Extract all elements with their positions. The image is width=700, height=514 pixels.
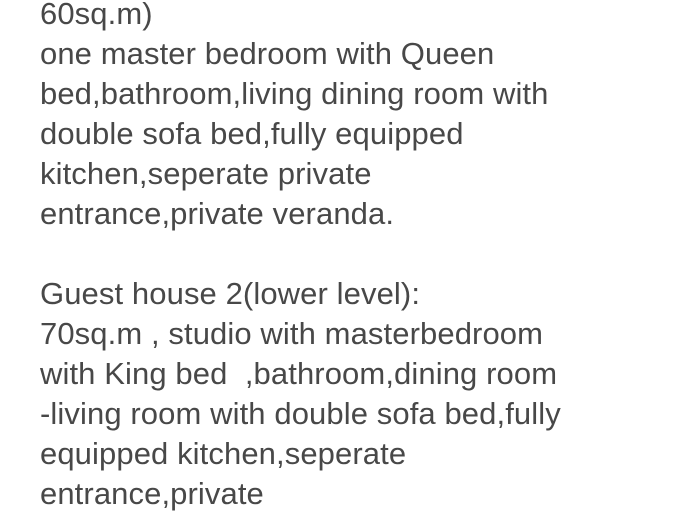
description-line: entrance,private (40, 474, 680, 514)
description-line: one master bedroom with Queen (40, 34, 680, 74)
description-line: -living room with double sofa bed,fully (40, 394, 680, 434)
description-line: equipped kitchen,seperate (40, 434, 680, 474)
listing-description: 60sq.m) one master bedroom with Queen be… (40, 0, 680, 514)
description-line: bed,bathroom,living dining room with (40, 74, 680, 114)
description-line-blank (40, 234, 680, 274)
description-line: Guest house 2(lower level): (40, 274, 680, 314)
description-line: entrance,private veranda. (40, 194, 680, 234)
description-line: 70sq.m , studio with masterbedroom (40, 314, 680, 354)
description-line: with King bed ,bathroom,dining room (40, 354, 680, 394)
description-line: 60sq.m) (40, 0, 680, 34)
description-line: kitchen,seperate private (40, 154, 680, 194)
description-line: double sofa bed,fully equipped (40, 114, 680, 154)
page: { "page": { "background_color": "#ffffff… (0, 0, 700, 500)
